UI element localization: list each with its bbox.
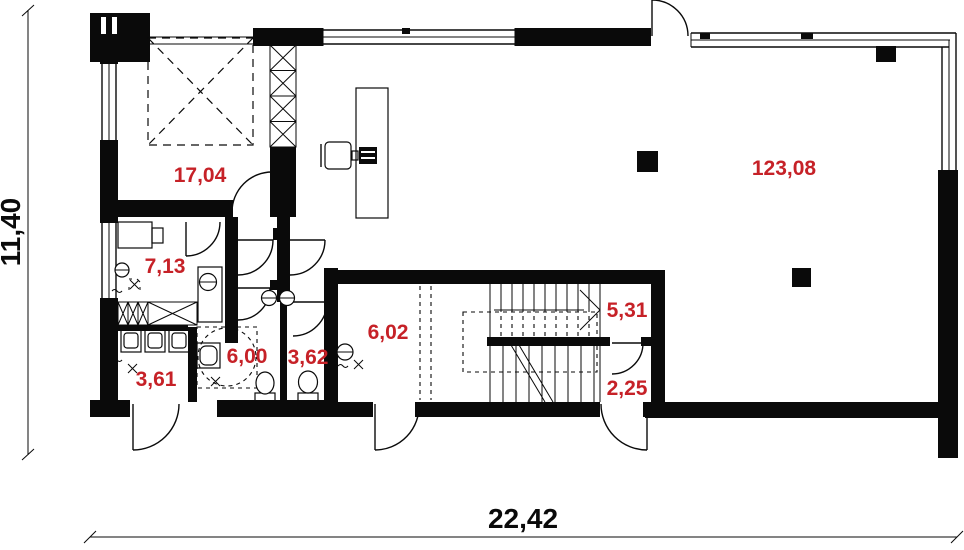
stair-direction-arrow [494, 290, 600, 330]
door-1704 [232, 172, 272, 212]
monitor [359, 147, 377, 164]
column [637, 151, 658, 172]
glazing-mullion [801, 33, 813, 39]
left-window-upper [102, 62, 116, 140]
width-dimension-label: 22,42 [488, 503, 558, 534]
drain-symbol [129, 279, 140, 290]
hatched-chimney-column [270, 45, 296, 147]
room-area-label-602: 6,02 [368, 321, 409, 344]
room-area-label-12308: 123,08 [752, 157, 817, 180]
exterior-door-361 [133, 404, 179, 450]
wardrobe-dashed-line [420, 286, 431, 400]
chimney-pier [270, 147, 296, 217]
wall-w1 [225, 217, 238, 343]
door-vestibule-b [290, 240, 325, 275]
left-wall-segment [100, 140, 118, 223]
keyboard [352, 151, 358, 160]
window-mullion [402, 28, 410, 34]
valve-symbol [115, 263, 129, 277]
flue-slit [112, 17, 117, 34]
top-wall-segment [253, 28, 323, 46]
floor-plan-canvas: 17,04 7,13 3,61 6,00 3,62 6,02 5,31 2,25… [0, 0, 964, 550]
sep-600-362 [280, 302, 287, 402]
left-window-lower [102, 223, 116, 298]
glazed-facade-top [691, 33, 956, 47]
left-wall-segment [100, 298, 118, 400]
stair-block-right-wall [651, 284, 665, 415]
room-area-label-225: 2,25 [607, 377, 648, 400]
stair-block-top-wall [333, 270, 665, 284]
room-area-label-713: 7,13 [145, 255, 186, 278]
interior-walls [100, 147, 665, 417]
wc-lobby-pier [270, 280, 290, 290]
glazed-facade-right [942, 33, 956, 170]
glazing-mullion [700, 33, 710, 39]
wall-under-1704 [117, 200, 233, 217]
valve-symbol [337, 344, 353, 360]
top-window [323, 28, 515, 46]
exterior-door-225 [601, 404, 647, 450]
left-wall-segment [100, 50, 118, 64]
stair-block-bottom-segment [333, 402, 373, 417]
room-area-label-531: 5,31 [607, 299, 648, 322]
cabinet-hatch [118, 302, 197, 325]
door-stair-landing [612, 343, 643, 374]
stair-block-bottom-segment [415, 402, 600, 417]
door-713 [186, 222, 220, 256]
entry-door-top [652, 0, 688, 36]
washbasin-600 [197, 343, 220, 368]
height-dimension-label: 11,40 [0, 198, 26, 267]
room-area-label-362: 3,62 [288, 346, 329, 369]
door-vestibule-a [238, 240, 273, 275]
bottom-wall-segment [90, 400, 130, 417]
washbasin-row [121, 328, 189, 352]
floor-plan-page: 17,04 7,13 3,61 6,00 3,62 6,02 5,31 2,25… [0, 0, 964, 550]
toilet-362 [298, 371, 318, 402]
vestibule-pier [273, 228, 290, 240]
dimension-bottom: 22,42 [84, 503, 963, 543]
office-chair [325, 142, 351, 169]
stair-mid-wall [487, 337, 610, 346]
toilet-600 [255, 372, 275, 402]
stair-break-line [511, 345, 553, 402]
drain-symbol [211, 377, 220, 386]
appliance-knob [152, 228, 163, 243]
chimney-block [90, 13, 150, 62]
bottom-wall-great-room [645, 402, 958, 418]
room-area-label-1704: 17,04 [174, 164, 227, 187]
flue-slit [101, 17, 106, 34]
dimension-left: 11,40 [0, 5, 34, 460]
stair-block-left-wall [324, 268, 338, 415]
void-opening [148, 38, 253, 145]
room-area-label-600: 6,00 [227, 345, 268, 368]
exterior-walls [90, 13, 958, 458]
column [792, 268, 811, 287]
room-area-label-361: 3,61 [136, 368, 177, 391]
door-362 [293, 302, 327, 336]
drain-symbol [354, 360, 363, 369]
wave-symbol [112, 290, 122, 293]
top-wall-segment [515, 28, 651, 46]
column [876, 46, 896, 62]
exterior-door-602 [375, 404, 419, 450]
wave-symbol [338, 365, 348, 368]
appliance-713 [118, 222, 152, 248]
